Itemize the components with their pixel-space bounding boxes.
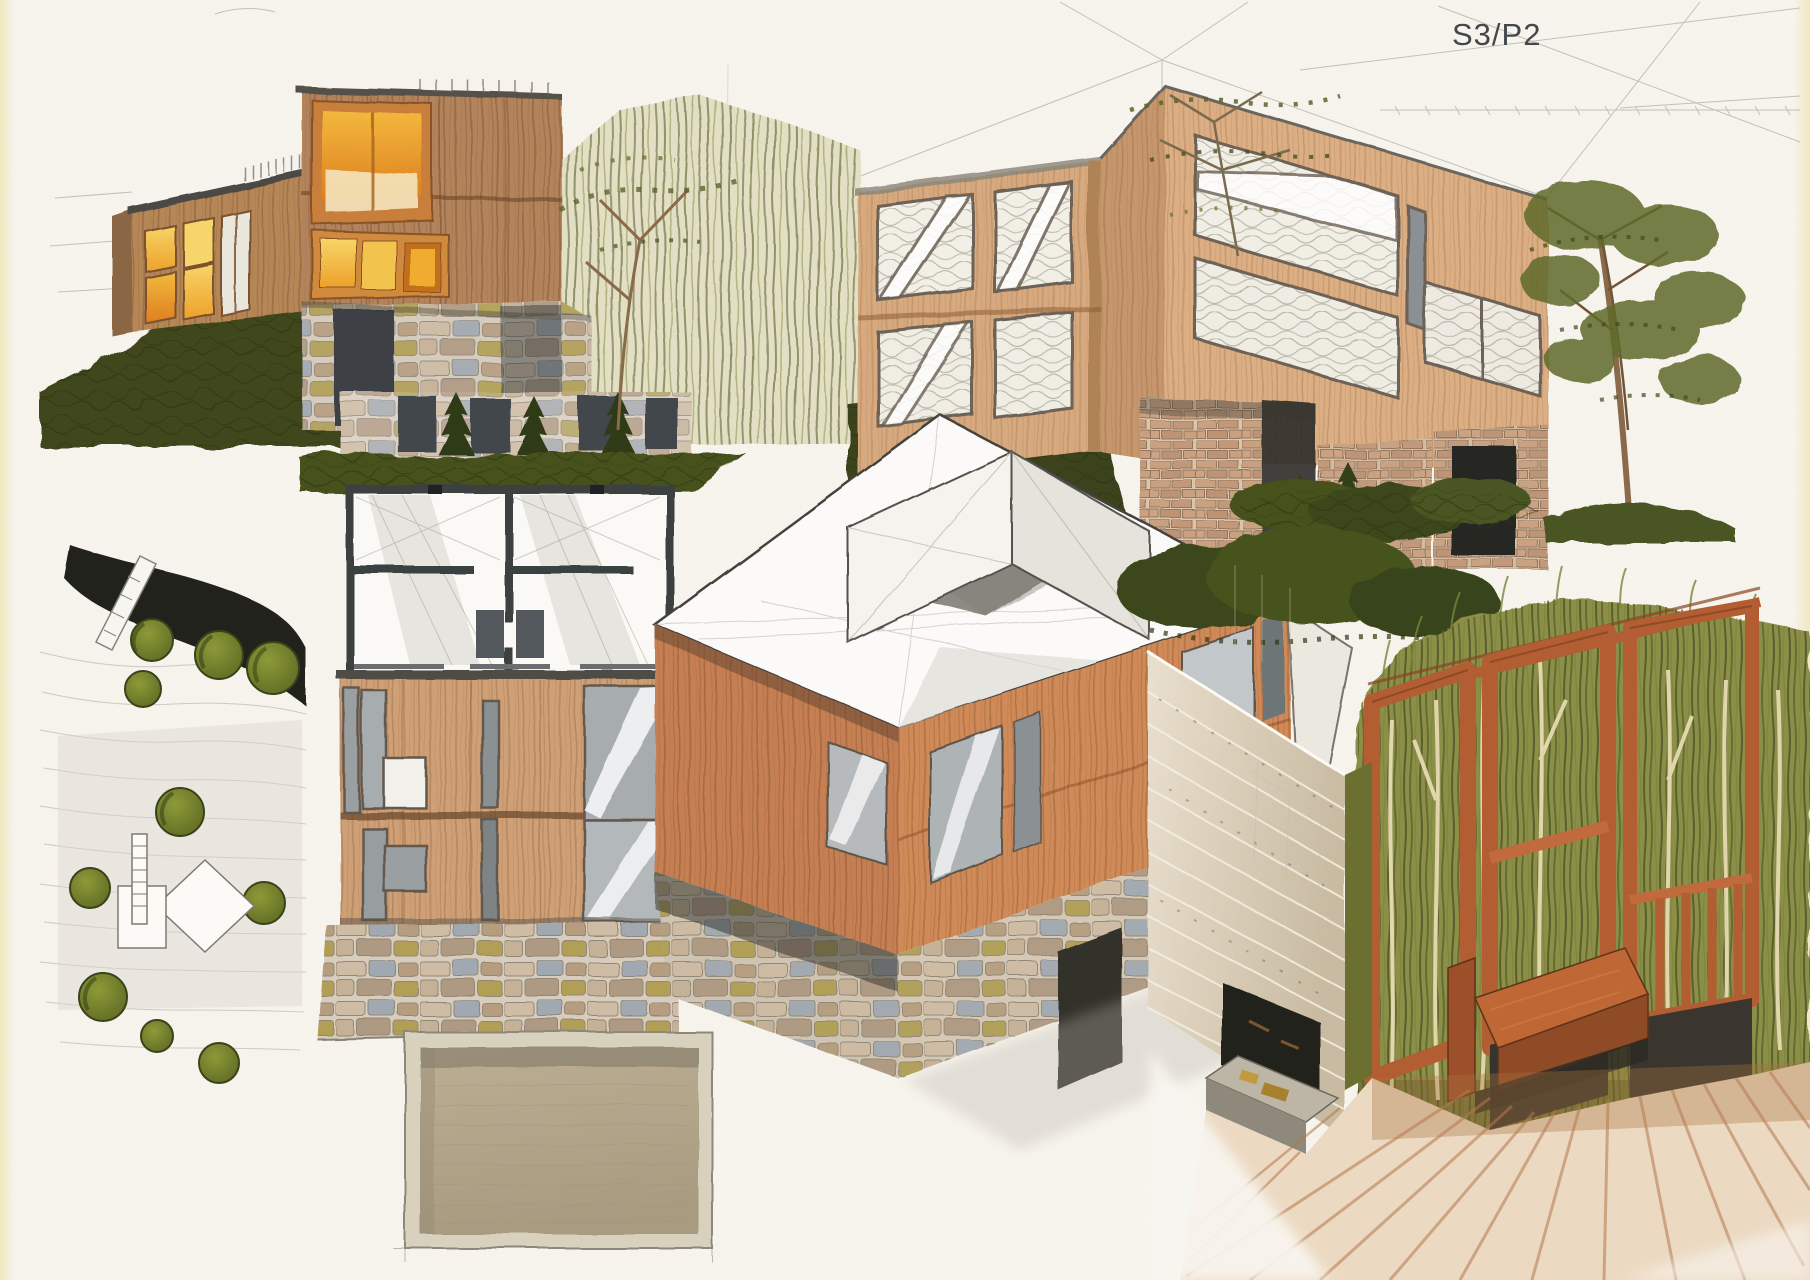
panel-front-elevation [318,670,690,1040]
paper-edge-left [0,0,14,1280]
roof-plan-surface [420,1047,698,1234]
plan-stair-core [476,610,504,658]
panel-floor-plan [346,485,674,670]
plan-bottom-wall [354,664,666,669]
panel-interior-perspective [1115,527,1810,1280]
drawing-canvas: S3/P2 [0,0,1810,1280]
garden-slot-view [1345,762,1372,1090]
loggia-glow-band [312,230,448,300]
panel-roof-plan [393,1032,712,1262]
plan-stair-core [516,610,544,658]
elevation-roofline [336,670,690,679]
corner-glow-window [312,100,432,224]
sheet-code-label: S3/P2 [1452,17,1541,52]
house-volume-right [296,79,562,306]
presentation-board: S3/P2 [0,0,1810,1280]
pencil-shading [58,720,302,1010]
elevation-stone-plinth [318,922,678,1040]
house-volume-near [855,156,1102,480]
